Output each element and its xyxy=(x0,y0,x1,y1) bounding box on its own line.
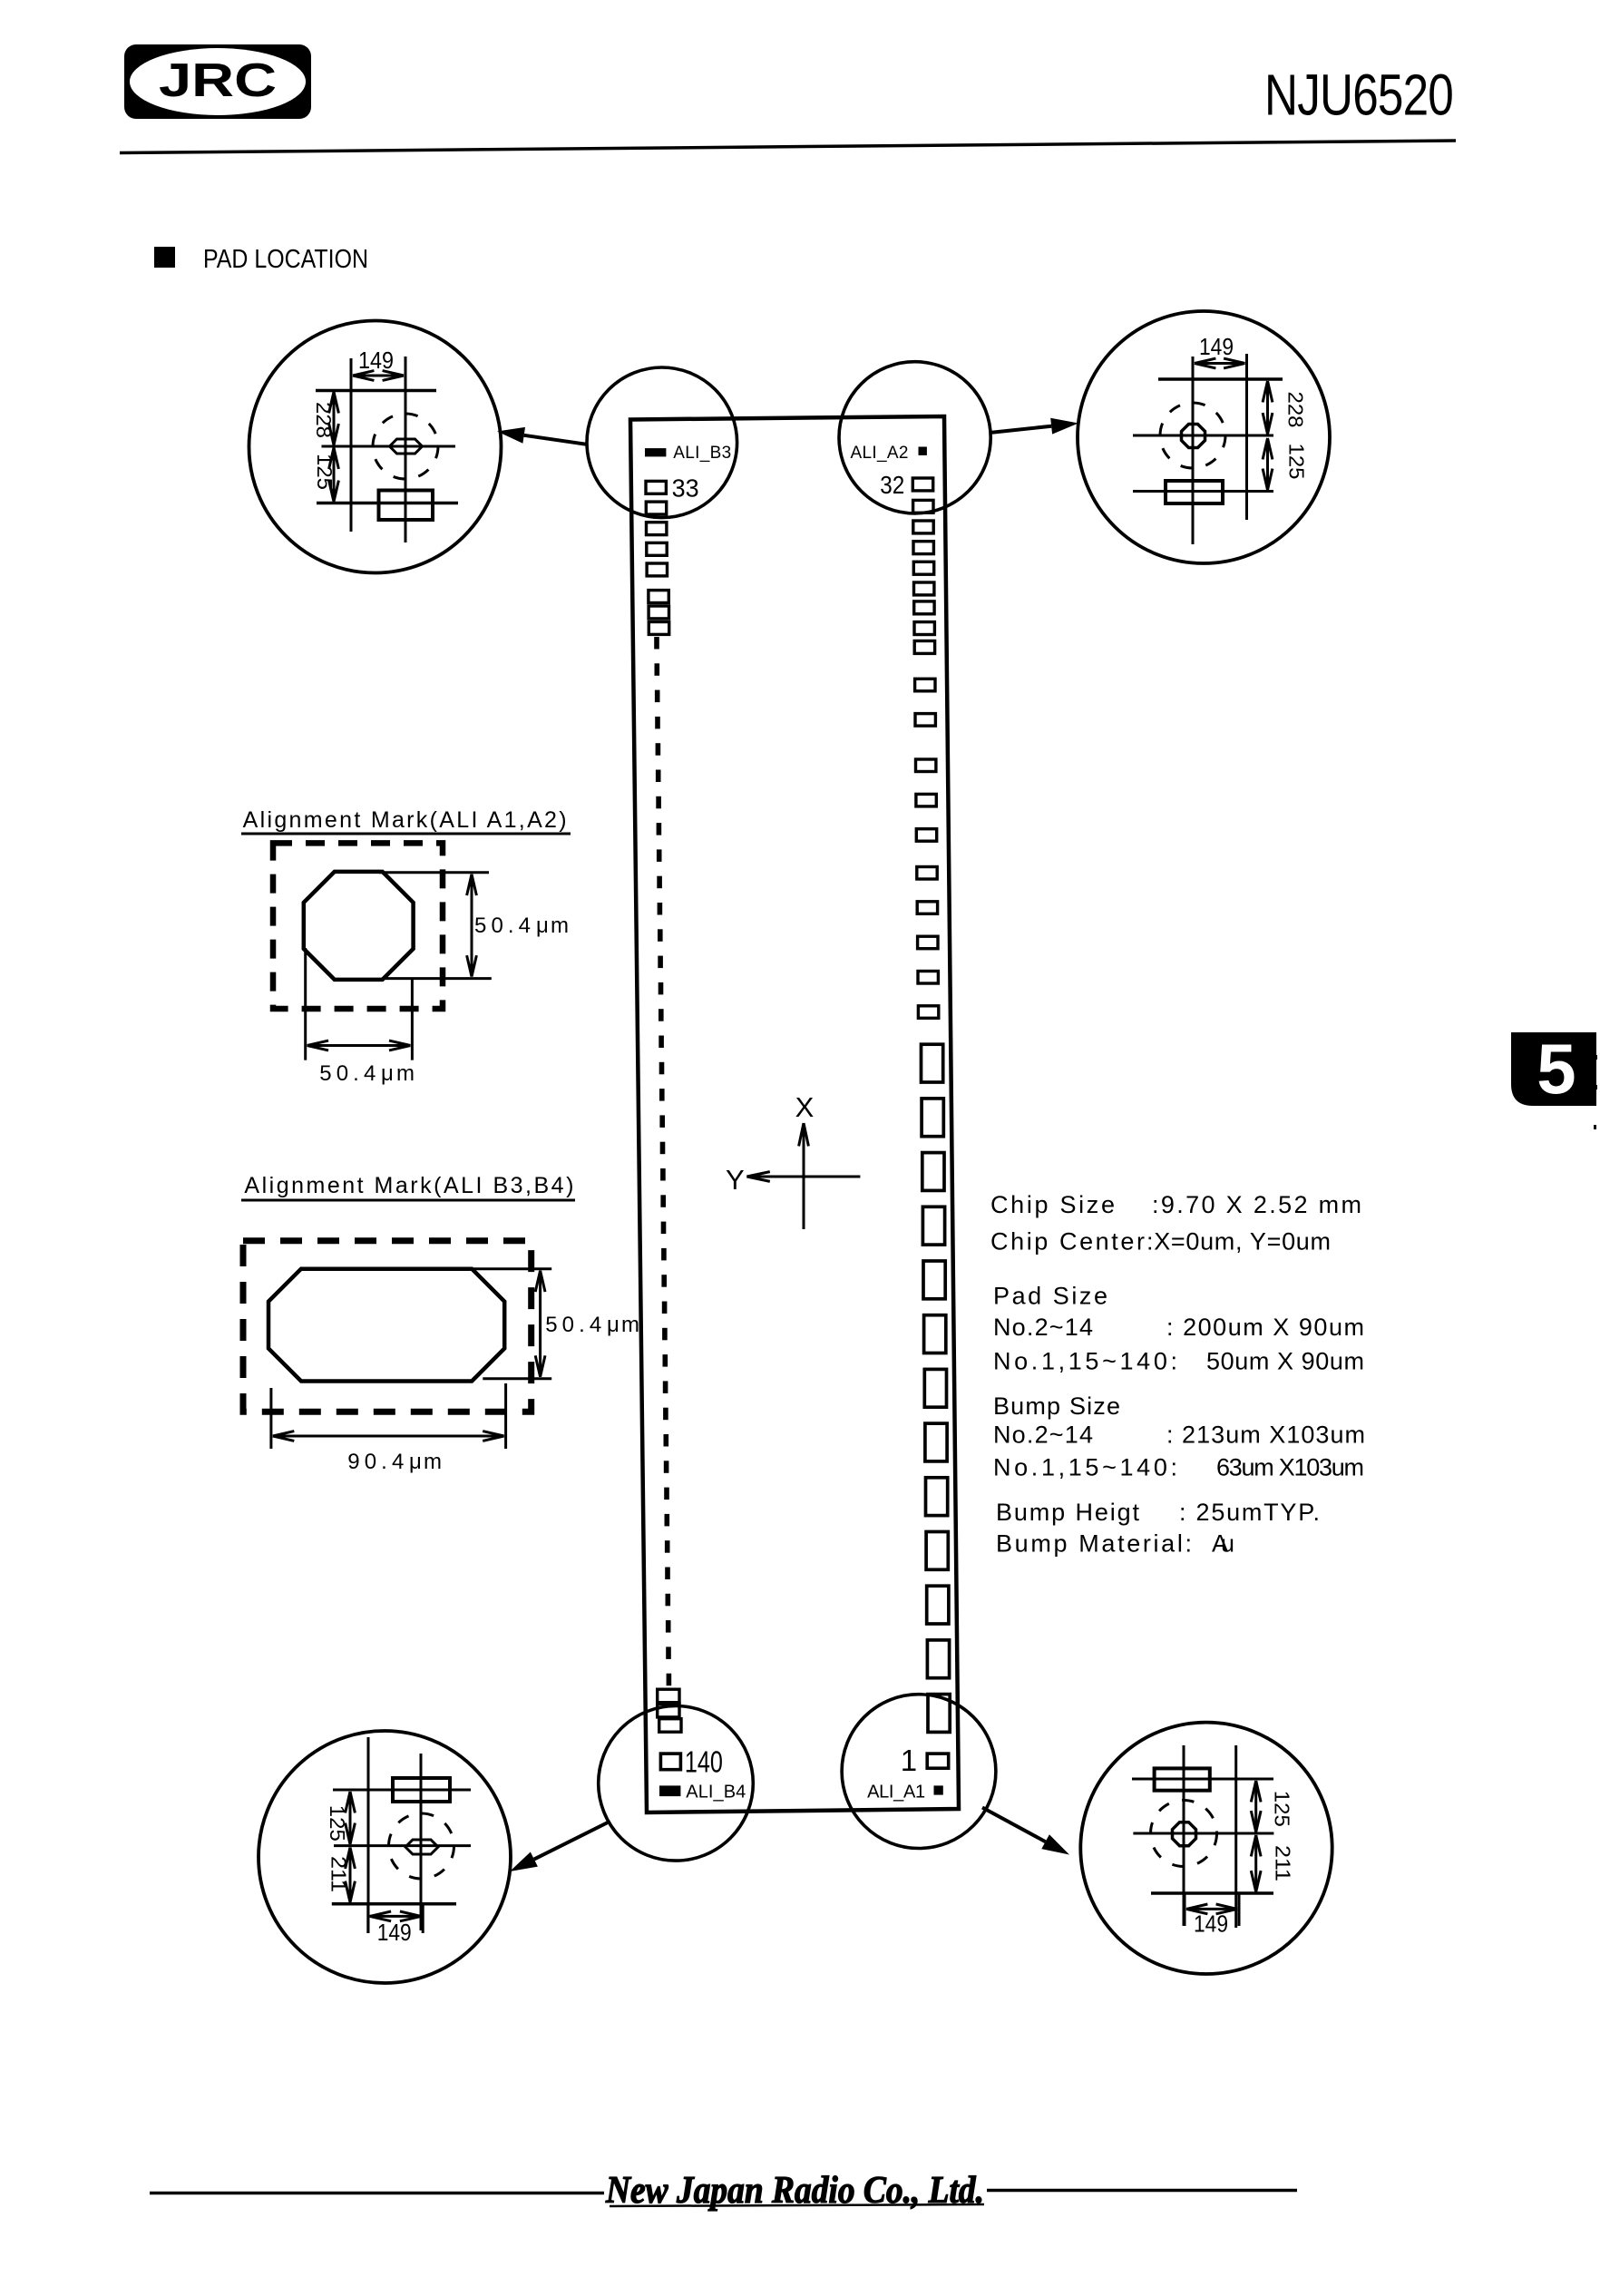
svg-text:50um X 90um: 50um X 90um xyxy=(1206,1348,1364,1375)
svg-text:ALI_B3: ALI_B3 xyxy=(673,444,731,463)
svg-text:m: m xyxy=(551,914,569,938)
svg-text:NJU6520: NJU6520 xyxy=(1264,63,1453,128)
svg-text:211: 211 xyxy=(1272,1845,1295,1881)
svg-text:125: 125 xyxy=(1271,1791,1294,1827)
svg-text:125: 125 xyxy=(326,1805,349,1842)
svg-text:Bump Size: Bump Size xyxy=(993,1392,1120,1420)
svg-text:50.4: 50.4 xyxy=(474,914,531,938)
svg-text:90.4: 90.4 xyxy=(347,1450,404,1474)
svg-text:149: 149 xyxy=(377,1919,412,1946)
svg-text:m: m xyxy=(424,1450,442,1474)
svg-text:50.4: 50.4 xyxy=(545,1313,601,1337)
svg-text:No.2~14: No.2~14 xyxy=(993,1422,1093,1449)
svg-text:140: 140 xyxy=(685,1745,723,1779)
svg-text:228: 228 xyxy=(1284,392,1308,428)
svg-text:149: 149 xyxy=(358,347,394,374)
svg-text:μ: μ xyxy=(381,1061,394,1086)
svg-text:No.2~14: No.2~14 xyxy=(993,1314,1093,1341)
svg-text:33: 33 xyxy=(672,474,699,503)
svg-text:ALI_A2: ALI_A2 xyxy=(851,444,909,463)
svg-text:Chip Center: Chip Center xyxy=(990,1228,1145,1255)
svg-text:: 213um X103um: : 213um X103um xyxy=(1166,1422,1365,1449)
svg-text::9.70 X 2.52 mm: :9.70 X 2.52 mm xyxy=(1152,1191,1361,1218)
svg-text:228: 228 xyxy=(312,402,336,438)
svg-text:32: 32 xyxy=(880,471,904,499)
svg-text:No.1,15~140:: No.1,15~140: xyxy=(993,1348,1177,1375)
svg-text:ALI_B4: ALI_B4 xyxy=(686,1783,746,1803)
svg-text:63um X103um: 63um X103um xyxy=(1216,1454,1364,1481)
svg-text:m: m xyxy=(621,1313,639,1337)
svg-text:: 200um X 90um: : 200um X 90um xyxy=(1166,1314,1364,1341)
svg-text:Y: Y xyxy=(726,1164,745,1196)
svg-text:5: 5 xyxy=(1537,1029,1576,1109)
svg-text:125: 125 xyxy=(313,454,337,490)
svg-text:PAD LOCATION: PAD LOCATION xyxy=(203,245,368,274)
svg-text:X: X xyxy=(795,1091,815,1123)
svg-text:m: m xyxy=(396,1061,415,1086)
svg-text:μ: μ xyxy=(409,1450,422,1474)
svg-text:Bump Material:: Bump Material: xyxy=(996,1530,1192,1558)
svg-text:μ: μ xyxy=(536,914,549,938)
svg-text:149: 149 xyxy=(1194,1910,1228,1938)
svg-text:JRC: JRC xyxy=(159,54,277,107)
svg-text:125: 125 xyxy=(1285,444,1309,480)
svg-text:μ: μ xyxy=(607,1313,620,1337)
svg-text:ALI_A1: ALI_A1 xyxy=(867,1783,925,1803)
svg-text:211: 211 xyxy=(327,1856,350,1892)
svg-text:: 25umTYP.: : 25umTYP. xyxy=(1179,1499,1320,1526)
svg-text:50.4: 50.4 xyxy=(319,1061,376,1086)
svg-text:Au: Au xyxy=(1212,1530,1234,1558)
svg-text::X=0um, Y=0um: :X=0um, Y=0um xyxy=(1146,1228,1331,1255)
svg-text:1: 1 xyxy=(901,1744,917,1777)
svg-text:No.1,15~140:: No.1,15~140: xyxy=(993,1454,1177,1481)
svg-text:Bump Heigt: Bump Heigt xyxy=(996,1499,1139,1526)
svg-text:149: 149 xyxy=(1199,333,1234,360)
